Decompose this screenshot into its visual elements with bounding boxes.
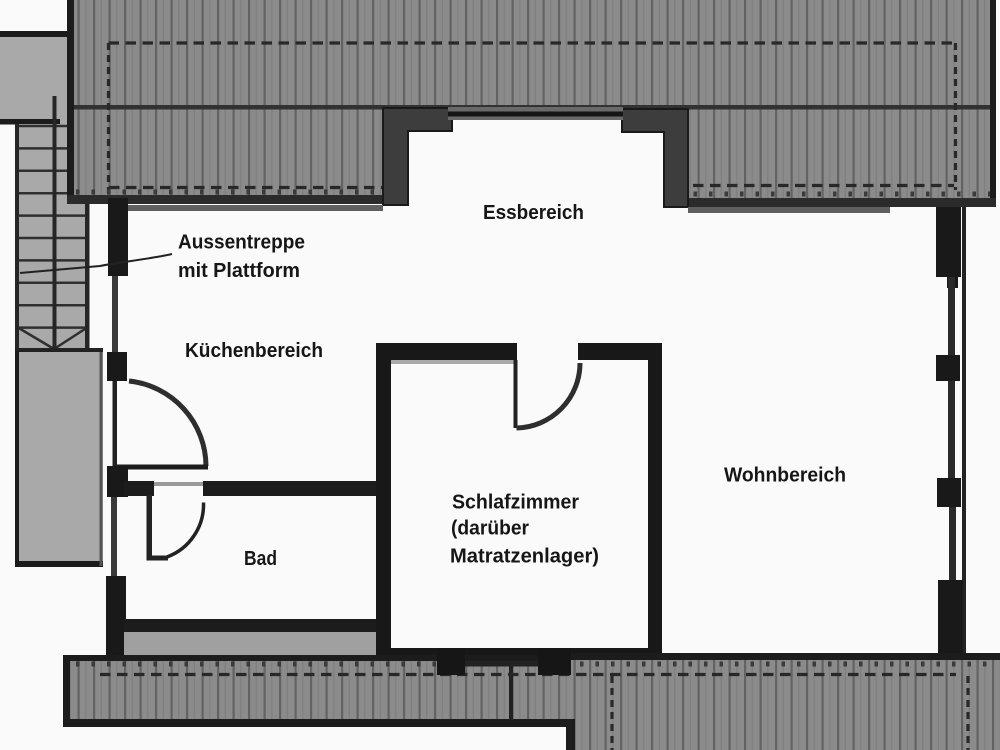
svg-text:Bad: Bad (244, 548, 277, 570)
svg-text:Aussentreppe: Aussentreppe (178, 232, 305, 254)
svg-text:(darüber: (darüber (451, 518, 529, 540)
svg-text:Küchenbereich: Küchenbereich (185, 340, 323, 362)
svg-text:Wohnbereich: Wohnbereich (724, 465, 846, 487)
svg-text:Matratzenlager): Matratzenlager) (450, 546, 599, 568)
svg-text:Essbereich: Essbereich (483, 202, 584, 224)
svg-text:Schlafzimmer: Schlafzimmer (452, 492, 579, 514)
svg-text:mit Plattform: mit Plattform (178, 260, 300, 282)
